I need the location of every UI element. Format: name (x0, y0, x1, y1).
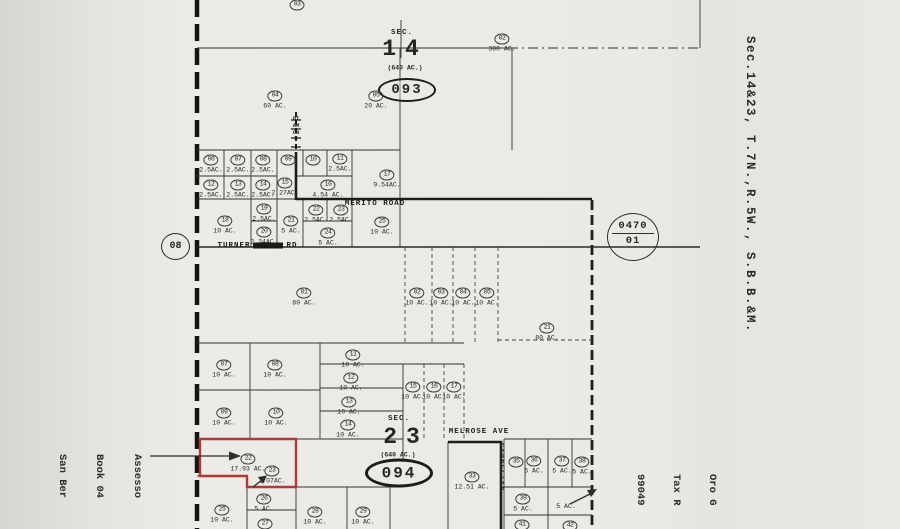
parcel-label: 03 (290, 0, 305, 11)
parcel-label: 1510 AC. (401, 376, 424, 401)
sec23-acreage: (640 AC.) (380, 452, 415, 459)
parcel-label: 0410 AC. (451, 282, 474, 307)
sec23-number: 23 (383, 424, 429, 450)
parcel-label: 0180 AC. (292, 282, 315, 307)
carnelian-road-label: CARNELIAN (498, 443, 505, 492)
parcel-label: 0460 AC. (263, 85, 286, 110)
parcel-label: 2510 AC. (370, 211, 393, 236)
parcel-label: 365 AC. (524, 450, 544, 475)
tax-rate-area-stamp: Oro G Tax R 99049 (610, 474, 742, 506)
parcel-label: 385 AC. (572, 451, 592, 476)
parcel-label: 0520 AC. (364, 85, 387, 110)
parcel-label: 375 AC. (552, 450, 572, 475)
parcel-label: 41 (515, 514, 530, 529)
parcel-label: 222.5AC. (304, 199, 327, 224)
parcel-label: 42 (563, 515, 578, 529)
ref-code-circle: 0470 01 (607, 213, 659, 261)
map-book-number: 094 (382, 464, 417, 482)
ref-code-top: 0470 (612, 214, 654, 234)
parcel-label: 152.27AC. (271, 172, 298, 197)
assessor-map-sheet: Sec.14&23, T.7N.,R.5W., S.B.B.&M. Assess… (0, 0, 900, 529)
adjacent-sheet-number: 08 (169, 241, 181, 252)
parcel-label: 1110 AC. (341, 344, 364, 369)
parcel-label: 265 AC. (254, 488, 274, 513)
sec14-number: 14 (382, 36, 428, 62)
adjacent-sheet-circle: 08 (161, 233, 190, 260)
parcel-label: 1710 AC. (442, 376, 465, 401)
merito-road-label: MERITO ROAD (345, 200, 406, 208)
parcel-label: 2910 AC. (351, 501, 374, 526)
parcel-label: 2180 AC. (535, 317, 558, 342)
parcel-label: 5 AC. (556, 502, 576, 510)
tax-stamp-line1: Oro G (706, 474, 718, 506)
parcel-label: 232.5AC. (329, 199, 352, 224)
parcel-label: 1410 AC. (336, 414, 359, 439)
ref-code-bottom: 01 (608, 234, 658, 247)
parcel-label: 1210 AC. (339, 367, 362, 392)
parcel-label: 0210 AC. (405, 282, 428, 307)
assessor-stamp-line3: San Ber (56, 454, 69, 498)
sheet-title-vertical: Sec.14&23, T.7N.,R.5W., S.B.B.&M. (743, 36, 757, 333)
melrose-ave-label: MELROSE AVE (449, 428, 510, 436)
parcel-label: 179.54AC. (373, 164, 400, 189)
sec14-acreage: (640 AC.) (387, 65, 422, 72)
parcel-label: 2810 AC. (303, 501, 326, 526)
turner-road-label: TURNER (217, 242, 250, 250)
diamond-road-label: DIAMOND (292, 116, 300, 143)
parcel-label: 0810 AC. (263, 354, 286, 379)
parcel-label: 202.34AC. (250, 221, 277, 246)
parcel-label: 1810 AC. (213, 210, 236, 235)
parcel-label: 02300 AC. (488, 28, 515, 53)
parcel-label: 215 AC. (281, 210, 301, 235)
parcel-label: 35 (509, 451, 524, 468)
turner-road-label-rd: RD (286, 242, 297, 250)
map-book-number: 093 (391, 82, 422, 98)
assessor-stamp-line1: Assesso (131, 454, 144, 498)
parcel-label: 2510 AC. (210, 499, 233, 524)
parcel-label: 0310 AC. (429, 282, 452, 307)
parcel-label: 3312.51 AC. (454, 466, 489, 491)
parcel-label: 0510 AC. (475, 282, 498, 307)
assessor-stamp-line2: Book 04 (93, 454, 106, 498)
parcel-label: 192.5AC. (252, 198, 275, 223)
parcel-label: 072.5AC. (226, 149, 249, 174)
parcel-label: 1010 AC. (264, 402, 287, 427)
parcel-label: 132.5AC. (226, 174, 249, 199)
parcel-label: 082.5AC. (251, 149, 274, 174)
parcel-label: 395 AC. (513, 488, 533, 513)
parcel-label: 245 AC. (318, 222, 338, 247)
parcel-boundary-lines (197, 0, 700, 529)
map-book-oval-094: 094 (365, 459, 433, 488)
parcel-label: 164.54 AC. (312, 174, 343, 199)
parcel-label: 0710 AC. (212, 354, 235, 379)
sec23-label: SEC. (388, 415, 410, 423)
parcel-label: 27 (258, 513, 273, 529)
parcel-label: 0910 AC. (212, 402, 235, 427)
parcel-label: 122.5AC. (199, 174, 222, 199)
parcel-label: 112.5AC. (328, 148, 351, 173)
parcel-label: 062.5AC. (199, 149, 222, 174)
assessor-book-stamp: Assesso Book 04 San Ber (31, 454, 169, 498)
tax-stamp-line2: Tax R (670, 474, 682, 506)
map-linework (0, 0, 900, 529)
parcel-label: 10 (306, 149, 321, 166)
parcel-label: 1310 AC. (337, 391, 360, 416)
parcel-label: 09 (281, 149, 296, 166)
parcel-label: 232.07AC. (258, 460, 285, 485)
tax-stamp-line3: 99049 (634, 474, 646, 506)
